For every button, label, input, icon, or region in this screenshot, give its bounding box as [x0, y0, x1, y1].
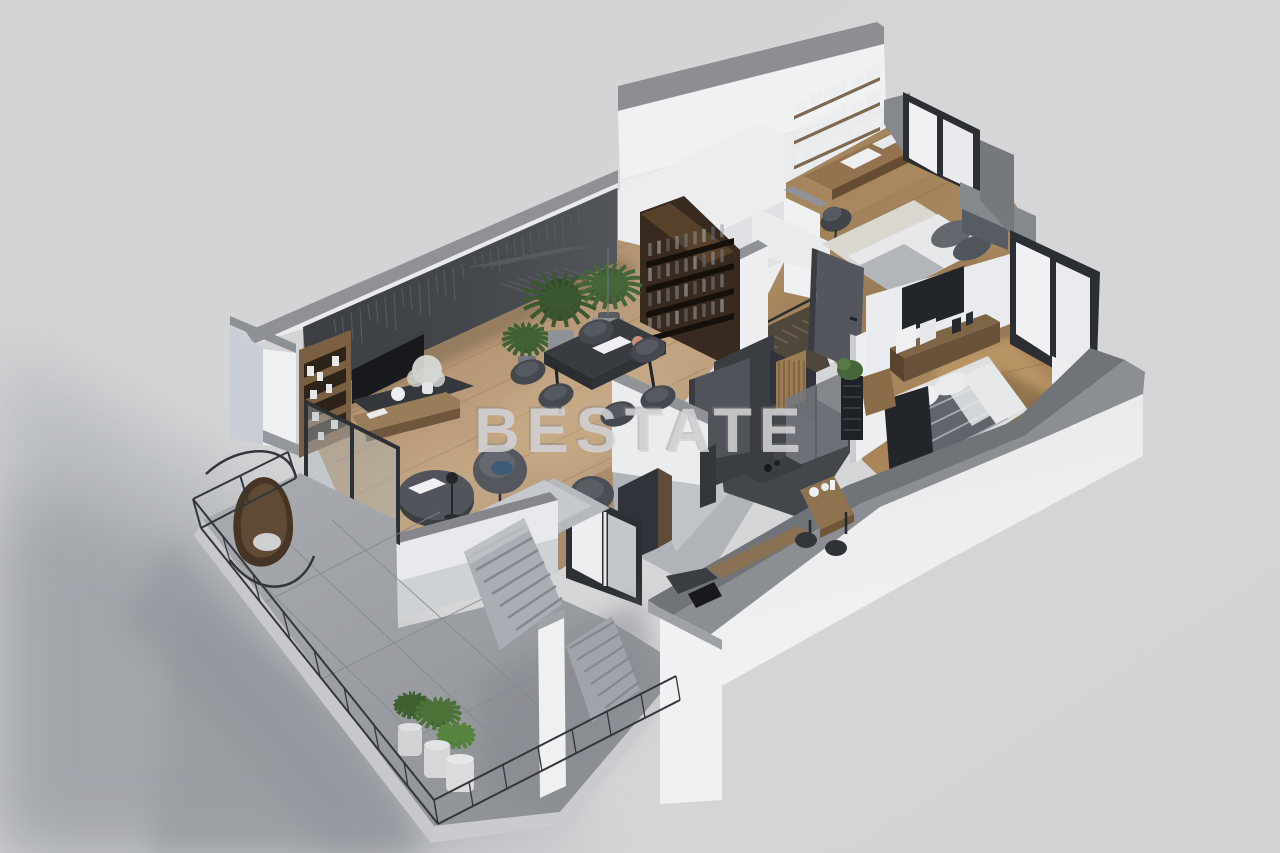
svg-text:BESTATE: BESTATE	[474, 396, 808, 466]
